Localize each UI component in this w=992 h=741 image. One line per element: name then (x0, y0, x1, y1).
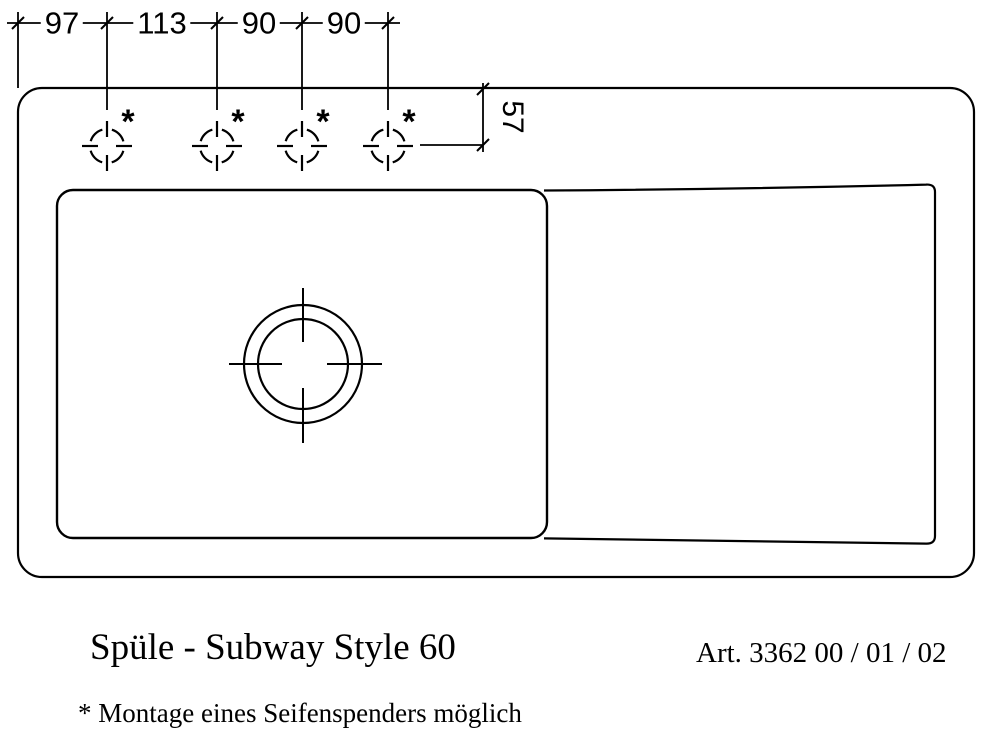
basin-outline (57, 190, 547, 538)
drain-icon (229, 288, 382, 443)
technical-drawing: 97 113 90 90 57 * * * * Spüle - Subway S… (0, 0, 992, 741)
asterisk-marker-icon: * (316, 105, 329, 139)
sink-outer-outline (18, 88, 974, 577)
asterisk-marker-icon: * (231, 105, 244, 139)
dimension-label-90-right: 90 (323, 8, 365, 39)
asterisk-marker-icon: * (402, 105, 415, 139)
dimension-label-57: 57 (497, 97, 527, 136)
dimension-label-90-left: 90 (238, 8, 280, 39)
asterisk-marker-icon: * (121, 105, 134, 139)
drainboard-outline (544, 185, 935, 544)
dimension-label-113: 113 (133, 8, 190, 39)
vertical-dimension (420, 83, 489, 152)
product-title: Spüle - Subway Style 60 (90, 626, 456, 669)
footnote: * Montage eines Seifenspenders möglich (78, 698, 522, 729)
article-number: Art. 3362 00 / 01 / 02 (696, 637, 947, 670)
dimension-label-97: 97 (41, 8, 83, 39)
